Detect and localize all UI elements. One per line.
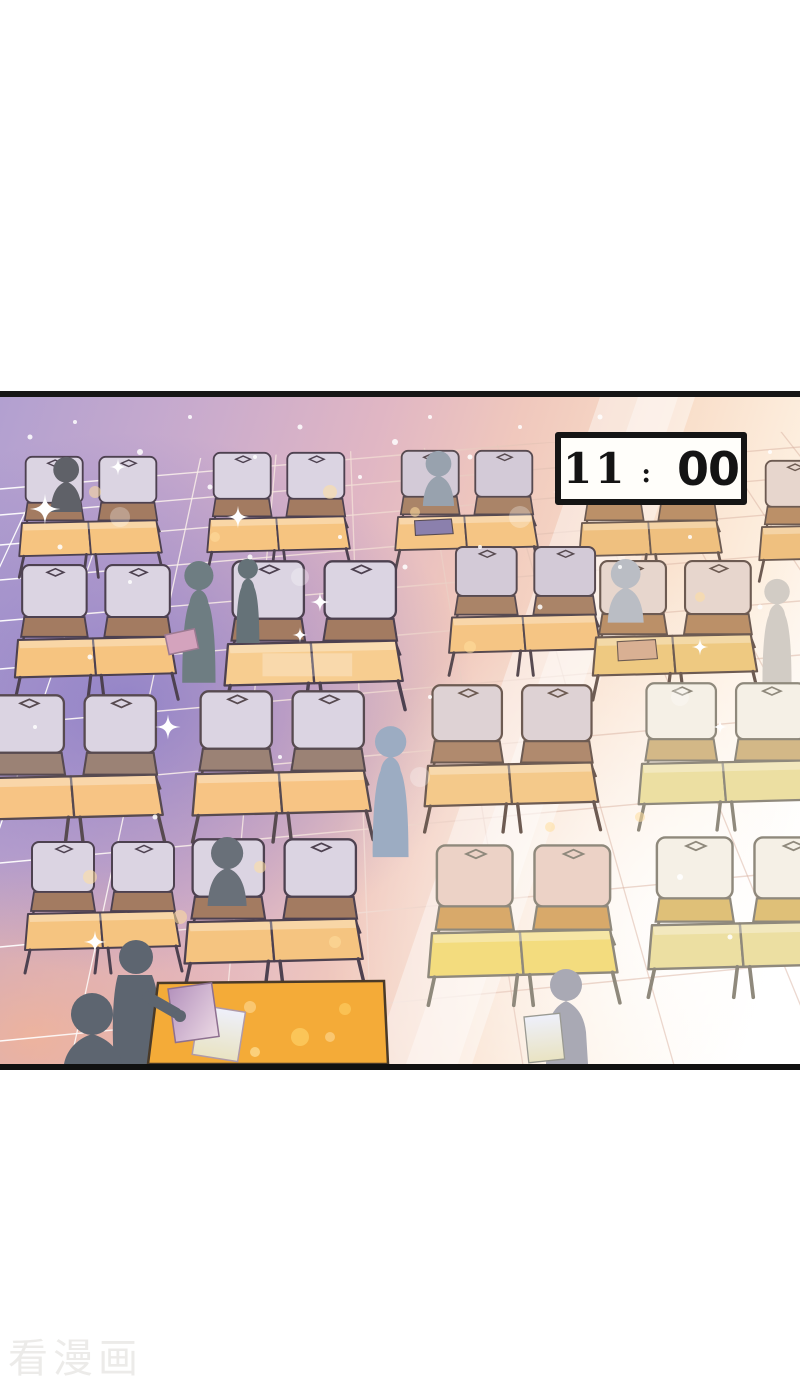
clock-display: 11 : 00 bbox=[555, 432, 747, 505]
desk-pair bbox=[185, 837, 366, 990]
student-figure-head bbox=[71, 993, 113, 1035]
standing-student-figure bbox=[236, 559, 259, 643]
paper-on-desk bbox=[415, 519, 454, 536]
clock-minutes: 00 bbox=[677, 446, 739, 492]
paper-on-desk bbox=[617, 640, 657, 661]
clock-separator: : bbox=[641, 461, 651, 487]
desk-pair bbox=[207, 453, 351, 574]
desk-pair bbox=[648, 837, 800, 997]
walking-student-group bbox=[524, 969, 588, 1064]
watermark-text: 看漫画 bbox=[8, 1326, 143, 1381]
clock-hours: 11 bbox=[563, 448, 627, 490]
desk-pair bbox=[639, 683, 800, 830]
comic-page: 11 : 00 看漫画 bbox=[0, 0, 800, 1381]
desk-pair bbox=[15, 565, 178, 701]
standing-student-figure bbox=[373, 726, 409, 857]
standing-student-figure bbox=[182, 561, 215, 683]
standing-student-figure bbox=[762, 579, 791, 685]
desk-panel bbox=[263, 653, 353, 676]
comic-panel: 11 : 00 bbox=[0, 391, 800, 1070]
desk-pair bbox=[593, 559, 759, 700]
desk-pair bbox=[759, 461, 800, 582]
teacher-figure-head bbox=[119, 940, 153, 974]
paper-held bbox=[524, 1013, 565, 1063]
desk-pair bbox=[193, 691, 374, 842]
